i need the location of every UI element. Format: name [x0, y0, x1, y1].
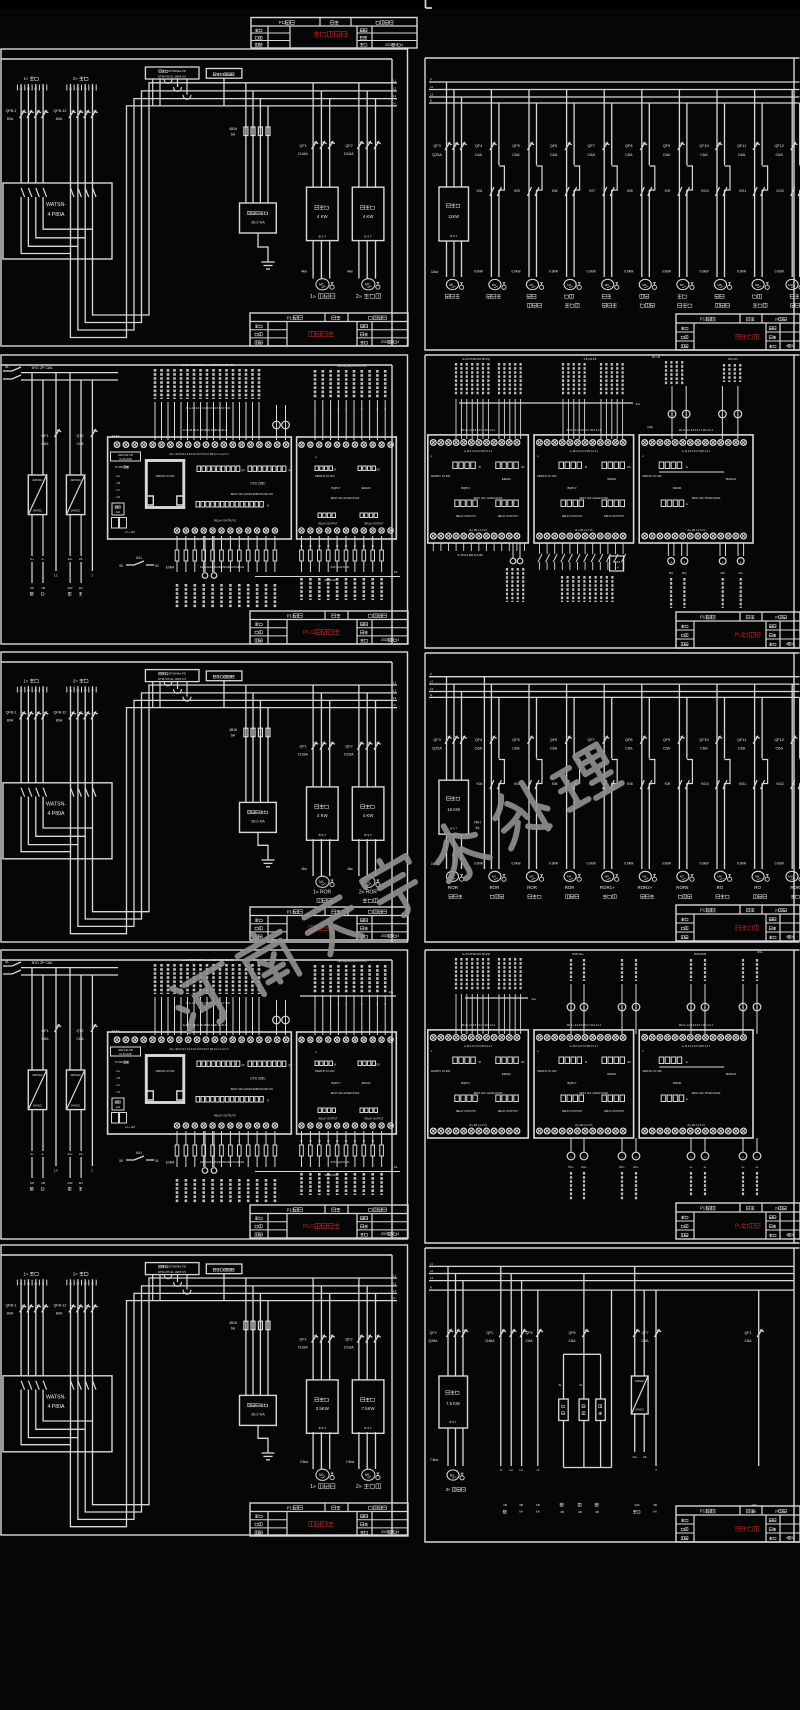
svg-text:QF10: QF10 — [699, 144, 709, 148]
svg-text:DI: DI — [334, 469, 337, 472]
svg-text:QF1: QF1 — [42, 434, 49, 438]
svg-text:DI: DI — [479, 467, 482, 469]
svg-text:4 P80A: 4 P80A — [47, 212, 65, 218]
svg-text:6ES7 223-1PH22-0XA0: 6ES7 223-1PH22-0XA0 — [331, 1091, 360, 1095]
svg-text:K08: K08 — [627, 189, 633, 193]
svg-text:L1: L1 — [54, 1169, 58, 1173]
svg-text:L1: L1 — [393, 78, 397, 82]
svg-text:2»: 2» — [775, 1207, 779, 1211]
svg-text:4 B 4 B 4 B: 4 B 4 B 4 B — [584, 358, 597, 361]
svg-text:o A: o A — [116, 1069, 120, 1073]
svg-text:M2: M2 — [492, 283, 496, 287]
svg-text:6ES7 216-1AG23-0XB0 DC/DC DC: 6ES7 216-1AG23-0XB0 DC/DC DC — [231, 1087, 273, 1091]
svg-text:M5: M5 — [605, 283, 609, 287]
svg-text:4B: 4B — [595, 1510, 599, 1514]
svg-text:N: N — [393, 101, 395, 105]
svg-text:RO»: RO» — [757, 950, 763, 954]
svg-text:51: 51 — [155, 1159, 159, 1163]
svg-text:QF3: QF3 — [433, 738, 440, 742]
svg-text:EM222: EM222 — [502, 1072, 511, 1076]
svg-text:U: U — [500, 1468, 502, 1472]
svg-text:4B: 4B — [653, 1503, 657, 1507]
svg-text:24V: 24V — [67, 586, 72, 590]
svg-text:11kw: 11kw — [431, 270, 439, 274]
svg-text:C6A: C6A — [625, 153, 633, 157]
svg-text:L3: L3 — [393, 1289, 397, 1293]
svg-text:L3: L3 — [393, 696, 397, 700]
svg-text:0.0kW: 0.0kW — [662, 862, 671, 866]
svg-text:RO»: RO» — [568, 1166, 574, 1169]
svg-text:2023: 2023 — [381, 638, 389, 642]
svg-text:6A: 6A — [231, 133, 236, 137]
svg-text:51: 51 — [155, 564, 159, 568]
svg-text:BYD 2P C6A: BYD 2P C6A — [32, 366, 53, 370]
svg-text:SMA231: SMA231 — [726, 1072, 737, 1076]
svg-text:QF7: QF7 — [588, 144, 595, 148]
svg-text:RELAY OUTPUTS: RELAY OUTPUTS — [498, 515, 518, 518]
svg-text:DI: DI — [479, 1062, 482, 1064]
svg-text:2»: 2» — [73, 76, 78, 81]
svg-text:RO AO: RO AO — [728, 357, 738, 361]
svg-text:4B16: 4B16 — [229, 1321, 237, 1325]
svg-text:SIMATIC S7-200: SIMATIC S7-200 — [431, 1069, 451, 1073]
svg-text:o D: o D — [116, 1090, 120, 1094]
svg-text:WATSN-: WATSN- — [46, 1394, 66, 1400]
svg-text:L1: L1 — [430, 1262, 433, 1266]
svg-text:C6A: C6A — [588, 153, 596, 157]
svg-text:80A: 80A — [7, 718, 14, 722]
svg-text:M4: M4 — [567, 283, 571, 287]
svg-text:QF5: QF5 — [526, 1331, 533, 1335]
svg-text:P: P — [430, 78, 432, 82]
svg-text:3L: 3L — [579, 1383, 583, 1387]
svg-text:6ES7 231-7PH22-0XA0: 6ES7 231-7PH22-0XA0 — [692, 496, 721, 500]
svg-text:0.0kW: 0.0kW — [474, 862, 483, 866]
svg-text:2»: 2» — [73, 678, 78, 683]
svg-text:K08: K08 — [627, 782, 633, 786]
svg-text:C6A: C6A — [663, 153, 671, 157]
svg-text:ROR6: ROR6 — [676, 885, 689, 890]
svg-text:QF9: QF9 — [663, 738, 670, 742]
svg-text:2»: 2» — [356, 294, 362, 300]
svg-text:2 L+ 1M: 2 L+ 1M — [125, 1125, 134, 1129]
svg-text:4» P0 P0 BO RO RO PQ: 4» P0 P0 BO RO RO PQ — [462, 358, 490, 361]
svg-text:SIMATIC S7-200: SIMATIC S7-200 — [156, 1070, 175, 1073]
svg-text:B S T: B S T — [364, 833, 372, 837]
svg-text:M L+ 1M 0.0 0.1 0.2 0.3 0.4 0.: M L+ 1M 0.0 0.1 0.2 0.3 0.4 0.5 0.6 0.7 … — [186, 408, 230, 410]
svg-text:24+: 24+ — [635, 402, 640, 406]
svg-text:B S T: B S T — [364, 1426, 372, 1430]
svg-text:DI: DI — [585, 467, 588, 469]
svg-text:C6A: C6A — [526, 1339, 534, 1343]
svg-text:T: T — [570, 1006, 572, 1010]
svg-text:24VDC: 24VDC — [33, 509, 42, 513]
svg-text:B S T: B S T — [319, 1426, 327, 1430]
svg-text:T: T — [583, 1006, 585, 1010]
svg-text:RELAY OUTPUTS: RELAY OUTPUTS — [214, 1114, 236, 1118]
svg-text:SIMATIC S7-200: SIMATIC S7-200 — [537, 1069, 557, 1073]
svg-text:K011: K011 — [739, 782, 746, 786]
svg-text:5L: 5L — [5, 960, 9, 964]
svg-text:C6A: C6A — [625, 747, 633, 751]
svg-text:ROR: ROR — [565, 885, 575, 890]
svg-text:M3: M3 — [529, 283, 533, 287]
svg-text:RELAY OUTPUTS: RELAY OUTPUTS — [604, 515, 624, 518]
svg-text:24+: 24+ — [68, 1152, 73, 1156]
svg-text:A+: A+ — [30, 557, 34, 561]
svg-text:B S T: B S T — [364, 235, 372, 239]
svg-text:T: T — [704, 1006, 706, 1010]
svg-text:M8: M8 — [717, 875, 721, 879]
svg-text:N: N — [430, 99, 432, 103]
svg-text:4 KW: 4 KW — [317, 214, 329, 219]
svg-text:QFB-1: QFB-1 — [6, 109, 17, 113]
svg-text:2»: 2» — [775, 616, 779, 620]
svg-text:K04: K04 — [477, 782, 483, 786]
svg-text:1B: 1B — [41, 1181, 45, 1185]
svg-text:4» P0 P0 BO RO RO PQ: 4» P0 P0 BO RO RO PQ — [462, 953, 490, 956]
svg-text:80A: 80A — [56, 718, 63, 722]
svg-text:M6: M6 — [642, 875, 646, 879]
svg-text:2023: 2023 — [381, 1232, 389, 1236]
svg-text:P: P — [430, 672, 432, 676]
svg-text:RO RQ RG RO PO PG: RO RQ RG RO PO PG — [338, 959, 367, 963]
svg-text:M4: M4 — [567, 875, 571, 879]
svg-text:M L+ 1M 0.0 0.1 0.2 0.3 0.4 0.: M L+ 1M 0.0 0.1 0.2 0.3 0.4 0.5 0.6 0.7 … — [170, 454, 230, 456]
svg-text:QF1: QF1 — [42, 1029, 49, 1033]
svg-text:ROR: ROR — [527, 885, 537, 890]
svg-text:2023: 2023 — [381, 934, 389, 938]
svg-text:M1: M1 — [449, 283, 454, 287]
svg-text:QF10: QF10 — [699, 738, 709, 742]
svg-text:SIMATIC S7-200: SIMATIC S7-200 — [642, 1069, 662, 1073]
svg-text:0.0kW: 0.0kW — [699, 862, 708, 866]
svg-text:L2: L2 — [393, 688, 397, 692]
svg-text:2»: 2» — [775, 1510, 779, 1514]
svg-text:7.5kw: 7.5kw — [430, 1458, 439, 1462]
svg-text:L+ M 0.1 0.2 0.3 1M 1.0 1.1: L+ M 0.1 0.2 0.3 1M 1.0 1.1 — [682, 451, 711, 453]
svg-text:24VDC: 24VDC — [33, 1104, 42, 1108]
svg-text:QT2: QT2 — [77, 434, 84, 438]
svg-text:RELAY OUTPUTS: RELAY OUTPUTS — [562, 515, 582, 518]
svg-text:SIMATIC S7-200: SIMATIC S7-200 — [537, 474, 557, 478]
svg-text:(AI0): (AI0) — [647, 425, 653, 429]
svg-text:QF2: QF2 — [345, 745, 352, 749]
svg-text:ROR2»: ROR2» — [637, 885, 652, 890]
svg-text:M1: M1 — [450, 1473, 455, 1477]
svg-text:Q25A: Q25A — [432, 747, 442, 751]
svg-text:QF2: QF2 — [345, 144, 352, 148]
svg-text:2»: 2» — [775, 318, 779, 322]
svg-text:SIMATIC S7-200: SIMATIC S7-200 — [156, 475, 175, 478]
svg-text:M1: M1 — [319, 283, 324, 287]
svg-text:CPU 226C: CPU 226C — [250, 1077, 266, 1081]
svg-text:0.0kW: 0.0kW — [587, 270, 596, 274]
svg-text:220VAC: 220VAC — [70, 478, 81, 482]
svg-text:EM223: EM223 — [362, 1081, 371, 1085]
svg-text:D16A: D16A — [344, 152, 354, 156]
svg-text:50: 50 — [119, 564, 123, 568]
svg-text:11KW: 11KW — [448, 214, 459, 219]
svg-text:24+: 24+ — [389, 990, 394, 994]
svg-text:36.0 KA: 36.0 KA — [251, 819, 265, 823]
svg-text:SM231: SM231 — [673, 1081, 682, 1085]
svg-text:1B: 1B — [536, 1503, 540, 1507]
svg-text:QFB-12: QFB-12 — [54, 109, 67, 113]
svg-text:4 KW: 4 KW — [317, 813, 329, 818]
svg-text:M L+ 1M 0.0 0.1 0.2 0.3 0.4 0.: M L+ 1M 0.0 0.1 0.2 0.3 0.4 0.5 0.6 0.7 … — [170, 1049, 230, 1051]
svg-text:QF11: QF11 — [737, 144, 746, 148]
svg-text:6ES7 221-1HH22-0XA0: 6ES7 221-1HH22-0XA0 — [474, 496, 503, 500]
svg-text:C6A: C6A — [42, 442, 50, 446]
svg-text:AL B 2C2D: AL B 2C2D — [119, 458, 132, 461]
svg-text:24-: 24- — [394, 570, 398, 574]
svg-text:K09: K09 — [665, 189, 671, 193]
svg-text:o B: o B — [116, 1076, 120, 1080]
svg-text:ROR: ROR — [490, 885, 500, 890]
svg-text:24V: 24V — [67, 1181, 72, 1185]
svg-text:DO: DO — [521, 467, 525, 469]
svg-text:QF4: QF4 — [475, 738, 482, 742]
svg-text:24+: 24+ — [632, 1455, 637, 1459]
svg-text:C6A: C6A — [569, 1339, 577, 1343]
svg-text:3.5kw: 3.5kw — [300, 1460, 309, 1464]
svg-text:C6A: C6A — [512, 153, 520, 157]
svg-text:DO: DO — [627, 467, 631, 469]
svg-text:4: 4 — [397, 340, 399, 344]
svg-text:6A: 6A — [519, 1510, 523, 1514]
svg-text:QF7: QF7 — [642, 1331, 649, 1335]
svg-text:M0 M0 M0: M0 M0 M0 — [324, 579, 336, 582]
svg-text:QF6: QF6 — [569, 1331, 576, 1335]
svg-text:C6A: C6A — [663, 747, 671, 751]
svg-text:2»: 2» — [775, 909, 779, 913]
svg-text:L+ M 0.1 0.2 0.3 1M 1.0 1.1: L+ M 0.1 0.2 0.3 1M 1.0 1.1 — [464, 1046, 493, 1048]
svg-text:C6A: C6A — [77, 1037, 85, 1041]
svg-text:M10: M10 — [788, 283, 794, 287]
svg-text:KA9 KA10 KA11: KA9 KA10 KA11 — [331, 1160, 350, 1164]
svg-text:4B16: 4B16 — [229, 127, 237, 131]
svg-text:T: T — [756, 1006, 758, 1010]
svg-text:2M 2L+ 0.4 0.5 0.6 0.7 1M 1.0: 2M 2L+ 0.4 0.5 0.6 0.7 1M 1.0 1.1 — [461, 430, 496, 432]
svg-text:6ES7 221-1HH22-0XA0: 6ES7 221-1HH22-0XA0 — [580, 1091, 609, 1095]
svg-text:0.0kW: 0.0kW — [624, 862, 633, 866]
svg-text:BQPLY: BQPLY — [331, 486, 340, 490]
svg-text:AA1: AA1 — [116, 511, 121, 514]
svg-text:S7-200: S7-200 — [115, 1061, 124, 1064]
svg-text:M2: M2 — [365, 283, 370, 287]
svg-text:4B16: 4B16 — [229, 728, 237, 732]
svg-text:24VDC: 24VDC — [71, 1104, 80, 1108]
svg-text:DTS634a-7/8: DTS634a-7/8 — [169, 69, 187, 73]
svg-text:0.0kW: 0.0kW — [474, 270, 483, 274]
svg-text:BQPLY: BQPLY — [567, 1081, 576, 1085]
svg-text:WATSN-: WATSN- — [46, 801, 66, 807]
svg-text:T: T — [685, 413, 687, 417]
svg-text:M7: M7 — [680, 875, 684, 879]
svg-text:QF12: QF12 — [774, 738, 784, 742]
svg-text:4 P80A: 4 P80A — [47, 1404, 65, 1410]
svg-text:L+ M 0.1 0.2 0.3 1M 1.0 1.1: L+ M 0.1 0.2 0.3 1M 1.0 1.1 — [682, 1046, 711, 1048]
svg-text:2»: 2» — [356, 1484, 362, 1490]
svg-text:6ES7 231-7PH22-0XA0: 6ES7 231-7PH22-0XA0 — [692, 1091, 721, 1095]
svg-text:D16A: D16A — [298, 152, 308, 156]
svg-text:0.0kW: 0.0kW — [549, 270, 558, 274]
svg-text:C6A: C6A — [550, 747, 558, 751]
svg-text:M6: M6 — [642, 283, 646, 287]
svg-text:1: 1 — [91, 1169, 93, 1173]
svg-text:SM231: SM231 — [673, 486, 682, 490]
svg-text:80A: 80A — [7, 1311, 14, 1315]
svg-text:o C: o C — [116, 488, 120, 492]
svg-text:4B: 4B — [578, 1510, 582, 1514]
svg-text:RELAY OUTPUTS: RELAY OUTPUTS — [456, 515, 476, 518]
svg-text:4: 4 — [792, 344, 794, 348]
svg-text:80A: 80A — [56, 1311, 63, 1315]
svg-text:o C: o C — [116, 1083, 120, 1087]
svg-text:BQPLY: BQPLY — [331, 1081, 340, 1085]
svg-text:ROR AO»: ROR AO» — [572, 952, 584, 956]
svg-text:ROR: ROR — [790, 885, 800, 890]
svg-text:1»: 1» — [24, 678, 29, 683]
svg-text:L2: L2 — [393, 1281, 397, 1285]
svg-text:2»: 2» — [73, 1271, 78, 1276]
svg-text:CPU 226C: CPU 226C — [250, 482, 266, 486]
svg-text:K010: K010 — [701, 782, 709, 786]
svg-text:QF3: QF3 — [433, 144, 440, 148]
svg-text:C6A: C6A — [550, 153, 558, 157]
svg-text:L3: L3 — [430, 687, 433, 691]
svg-text:Q25A: Q25A — [432, 153, 442, 157]
svg-text:4B: 4B — [560, 1510, 564, 1514]
svg-text:K06: K06 — [552, 189, 558, 193]
svg-text:4: 4 — [792, 1233, 794, 1237]
svg-text:RL+ M: RL+ M — [652, 355, 660, 359]
svg-text:2 L+ 1M: 2 L+ 1M — [125, 530, 134, 534]
svg-text:SM322: SM322 — [607, 1072, 616, 1076]
svg-text:6A: 6A — [231, 734, 236, 738]
svg-text:QFB-1: QFB-1 — [6, 711, 17, 715]
svg-text:K09: K09 — [665, 782, 671, 786]
svg-text:E4: E4 — [79, 1181, 83, 1185]
svg-text:L2: L2 — [393, 86, 397, 90]
svg-text:220VAC: 220VAC — [32, 1073, 43, 1077]
svg-text:C6A: C6A — [475, 153, 483, 157]
svg-text:C6A: C6A — [700, 747, 708, 751]
svg-text:QF1: QF1 — [745, 1331, 752, 1335]
svg-text:1»: 1» — [310, 294, 316, 300]
svg-text:6A: 6A — [231, 1327, 236, 1331]
svg-text:QF6: QF6 — [550, 144, 557, 148]
svg-text:2L+ 2M 1 2 3 4 5: 2L+ 2M 1 2 3 4 5 — [469, 530, 487, 532]
svg-text:QF5: QF5 — [512, 738, 519, 742]
svg-text:4: 4 — [397, 1232, 399, 1236]
svg-text:3»: 3» — [446, 1487, 451, 1492]
svg-text:36.0 KA: 36.0 KA — [251, 1412, 265, 1416]
svg-text:2M 2L+ 0.4 0.5 0.6 0.7 1M 1.0: 2M 2L+ 0.4 0.5 0.6 0.7 1M 1.0 1.1 — [567, 430, 602, 432]
svg-text:QF7: QF7 — [588, 738, 595, 742]
svg-text:4: 4 — [792, 642, 794, 646]
svg-text:2M 2L+ 0.4 0.5 0.6 0.7 1M 1.0: 2M 2L+ 0.4 0.5 0.6 0.7 1M 1.0 1.1 — [679, 430, 714, 432]
svg-text:L+ M 0.1 0.2 0.3 1M 1.0 1.1: L+ M 0.1 0.2 0.3 1M 1.0 1.1 — [570, 451, 599, 453]
svg-text:T: T — [635, 1006, 637, 1010]
svg-text:1» 2» ROR BOR 1» 2» ROR ROR RO: 1» 2» ROR BOR 1» 2» ROR ROR RO RO — [182, 363, 235, 367]
svg-text:2AD 03A-T/B: 2AD 03A-T/B — [118, 454, 133, 457]
svg-text:2AD 03A-T/B: 2AD 03A-T/B — [118, 1049, 133, 1052]
svg-text:QFB-1: QFB-1 — [6, 1304, 17, 1308]
svg-text:1L 0B 1B 0D 2L 1B 2B 1D 3L 2B: 1L 0B 1B 0D 2L 1B 2B 1D 3L 2B 3B 2D 4L — [182, 429, 228, 432]
svg-text:T: T — [655, 1468, 657, 1472]
svg-text:3.5KW: 3.5KW — [316, 1406, 330, 1411]
svg-text:24VDC: 24VDC — [71, 509, 80, 513]
svg-text:RELAY OUTPUTS: RELAY OUTPUTS — [604, 1110, 624, 1113]
svg-text:4: 4 — [401, 43, 403, 47]
svg-text:RELAY OUTPUTS: RELAY OUTPUTS — [562, 1110, 582, 1113]
svg-text:RELAY OUTPUT: RELAY OUTPUT — [319, 523, 338, 526]
svg-text:KA1: KA1 — [136, 1151, 142, 1155]
svg-text:E0M4: E0M4 — [166, 1161, 175, 1165]
svg-text:24-: 24- — [643, 1455, 647, 1459]
svg-text:2M 2L+ 0.4 0.5 0.6 0.7 1M 1.0: 2M 2L+ 0.4 0.5 0.6 0.7 1M 1.0 1.1 — [567, 1025, 602, 1027]
svg-text:4B: 4B — [519, 1503, 523, 1507]
svg-text:L2: L2 — [430, 1269, 433, 1273]
svg-text:QF4: QF4 — [475, 144, 482, 148]
svg-text:M9: M9 — [755, 875, 759, 879]
svg-text:KA9 KA10 KA11: KA9 KA10 KA11 — [331, 565, 350, 569]
svg-text:4: 4 — [397, 638, 399, 642]
svg-text:A+: A+ — [30, 1152, 34, 1156]
svg-text:C6A: C6A — [77, 442, 85, 446]
svg-text:6A: 6A — [536, 1510, 540, 1514]
svg-text:K012: K012 — [776, 189, 784, 193]
svg-text:1»: 1» — [24, 76, 29, 81]
svg-text:C6A: C6A — [745, 1339, 753, 1343]
svg-text:1: 1 — [91, 574, 93, 578]
svg-text:4: 4 — [397, 934, 399, 938]
svg-text:L3: L3 — [519, 1468, 523, 1472]
svg-text:80A: 80A — [7, 117, 14, 121]
svg-text:RO»: RO» — [581, 1166, 587, 1169]
svg-text:L+ M 0.1 0.2 0.3 1M 1.0 1.1: L+ M 0.1 0.2 0.3 1M 1.0 1.1 — [464, 451, 493, 453]
svg-text:M8: M8 — [717, 283, 721, 287]
svg-text:1» ROR: 1» ROR — [313, 890, 331, 896]
svg-text:2L+ 2M 1 2 3 4 5: 2L+ 2M 1 2 3 4 5 — [575, 530, 593, 532]
svg-text:PLC: PLC — [735, 633, 746, 639]
svg-text:6A: 6A — [653, 1510, 657, 1514]
svg-text:L2: L2 — [509, 1468, 513, 1472]
svg-text:o B: o B — [116, 481, 120, 485]
svg-text:QF3: QF3 — [430, 1331, 437, 1335]
svg-text:QFB-12: QFB-12 — [54, 711, 67, 715]
svg-text:DO: DO — [376, 469, 380, 472]
svg-text:0.0kW: 0.0kW — [775, 862, 784, 866]
svg-text:4 P80A: 4 P80A — [47, 811, 65, 817]
svg-text:4: 4 — [792, 935, 794, 939]
svg-text:M10: M10 — [788, 875, 794, 879]
svg-text:ROR ROR: ROR ROR — [694, 952, 706, 956]
svg-text:QF1: QF1 — [299, 745, 306, 749]
svg-text:RELAY OUTPUT: RELAY OUTPUT — [365, 1118, 384, 1121]
svg-text:4kw: 4kw — [301, 270, 307, 274]
svg-text:7.5 KW: 7.5 KW — [446, 1401, 460, 1406]
svg-text:0.0kW: 0.0kW — [511, 270, 520, 274]
svg-text:K011: K011 — [739, 189, 746, 193]
svg-text:4 KW: 4 KW — [363, 214, 375, 219]
svg-text:2» ROR: 2» ROR — [359, 890, 377, 896]
svg-text:C6A: C6A — [776, 153, 784, 157]
svg-text:0.0kW: 0.0kW — [737, 270, 746, 274]
svg-text:L2: L2 — [430, 680, 433, 684]
